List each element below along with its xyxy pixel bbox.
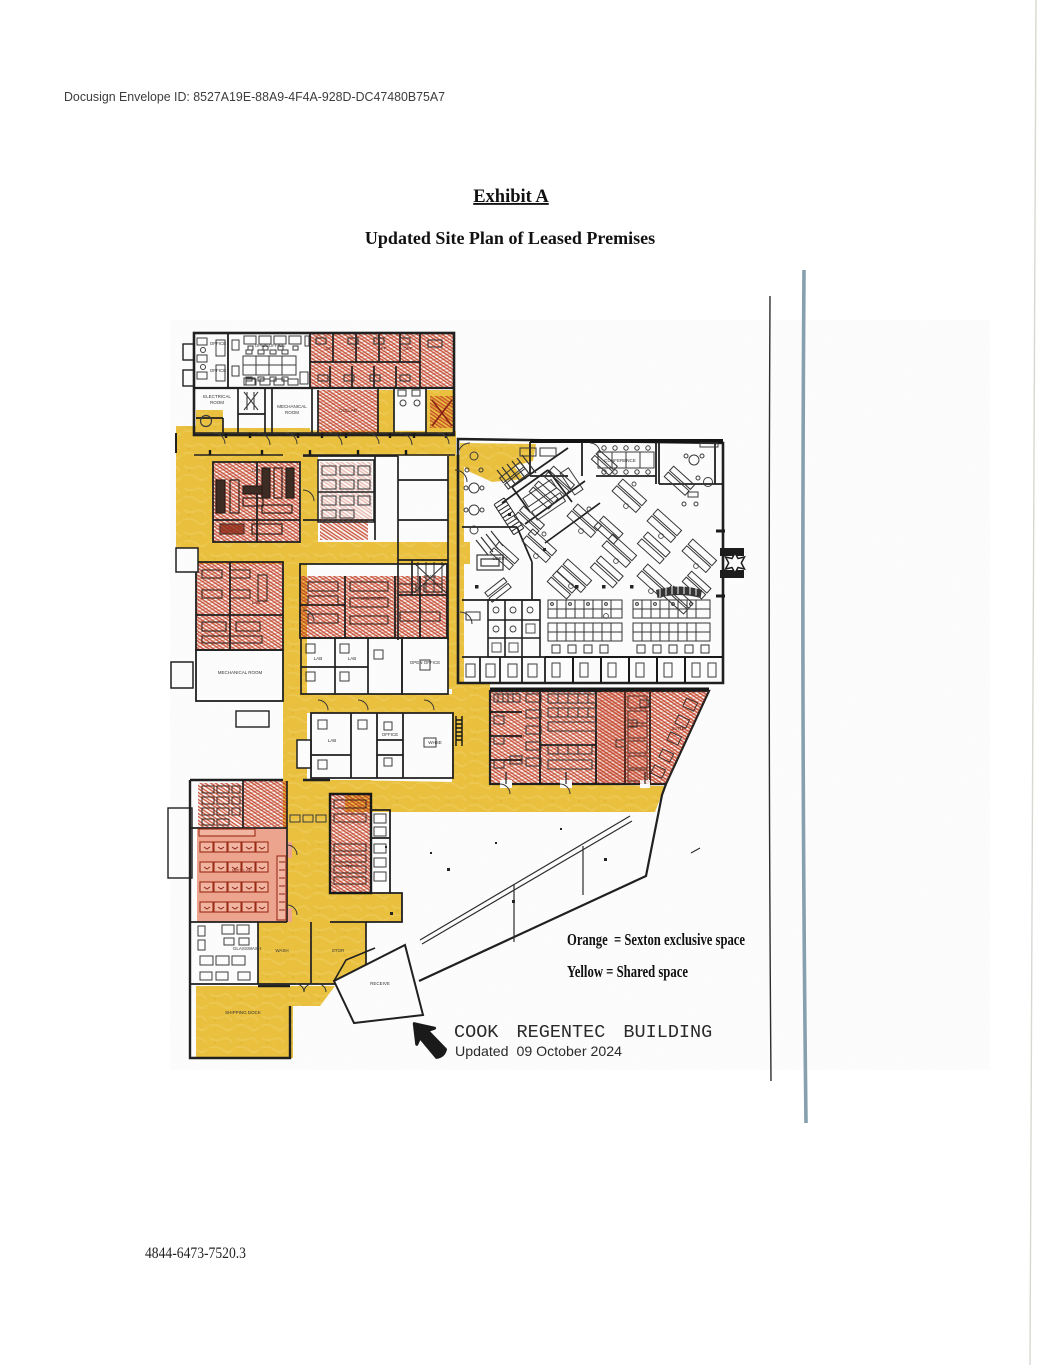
svg-text:Updated Site Plan of Leased Pr: Updated Site Plan of Leased Premises <box>365 228 655 248</box>
svg-text:Orange = Sexton exclusive spa: Orange = Sexton exclusive space <box>567 930 745 949</box>
svg-text:COOK REGENTEC BUILDING: COOK REGENTEC BUILDING <box>454 1022 712 1043</box>
svg-text:Updated 09 October 2024: Updated 09 October 2024 <box>455 1043 622 1059</box>
svg-text:4844-6473-7520.3: 4844-6473-7520.3 <box>145 1245 246 1262</box>
svg-text:Docusign Envelope ID: 8527A19E: Docusign Envelope ID: 8527A19E-88A9-4F4A… <box>64 89 445 104</box>
svg-text:Exhibit A: Exhibit A <box>473 187 549 207</box>
svg-text:Yellow = Shared space: Yellow = Shared space <box>567 962 688 981</box>
